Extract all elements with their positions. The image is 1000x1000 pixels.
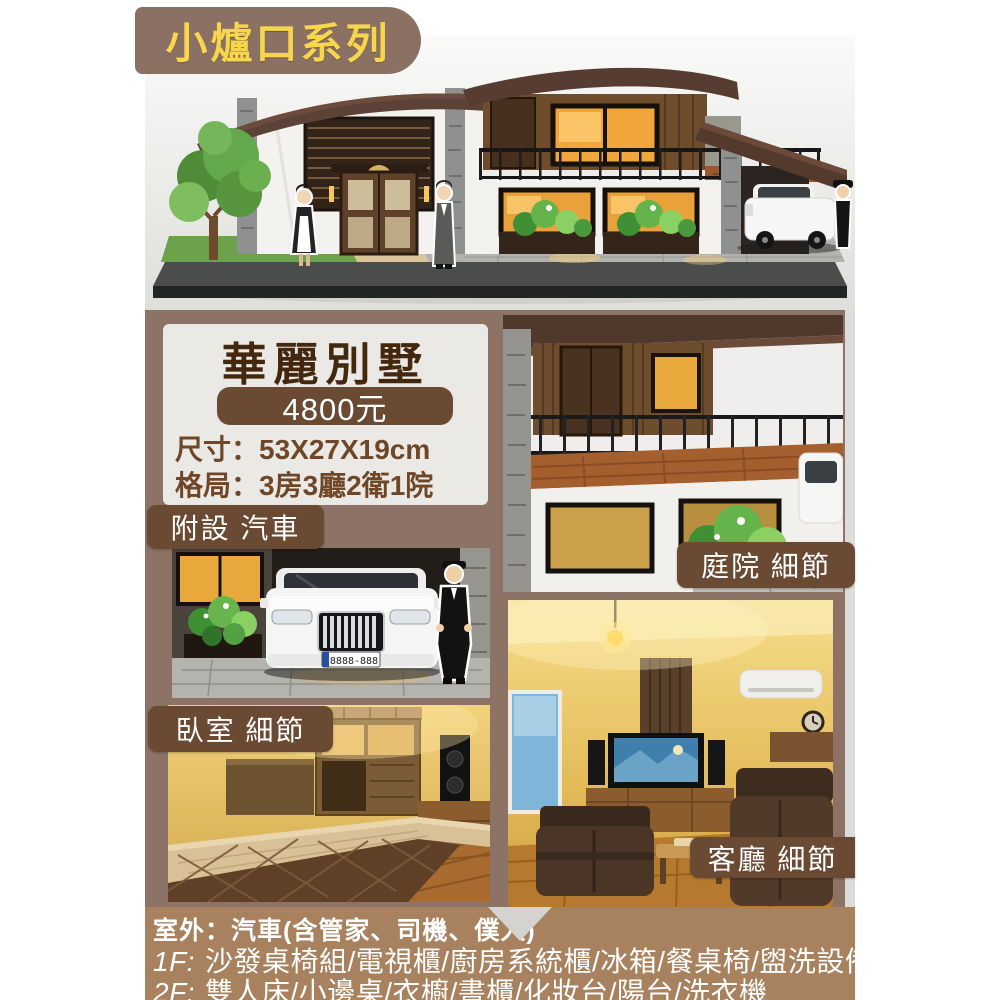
series-badge-label: 小爐口系列 [165, 10, 390, 71]
white-van [799, 453, 843, 523]
floor2-items: 雙人床/小邊桌/衣櫥/書櫃/化妝台/陽台/洗衣機 [205, 977, 768, 1000]
garage-illustration: 8888-888 [172, 548, 490, 698]
product-poster: 小爐口系列 [0, 0, 1000, 1000]
first-floor-wall [483, 180, 739, 254]
price-label: 4800元 [283, 384, 388, 429]
price-pill: 4800元 [217, 387, 453, 425]
wall-shelf [770, 732, 833, 762]
right-background-strip [845, 310, 855, 907]
svg-text:8888-888: 8888-888 [330, 656, 378, 667]
garage-car-photo: 8888-888 [172, 548, 490, 698]
tag-living-room-detail: 客廳 細節 [690, 837, 855, 878]
series-badge: 小爐口系列 [135, 7, 421, 74]
spec-size: 尺寸：53X27X19cm [175, 428, 485, 468]
window [510, 692, 560, 812]
display-platform [153, 262, 847, 298]
white-suv-front: 8888-888 [260, 568, 442, 681]
villa-exterior-illustration [145, 36, 855, 310]
desk [226, 759, 314, 815]
spec-layout: 格局：3房3廳2衛1院 [175, 464, 485, 504]
butler-figure [433, 180, 455, 269]
air-conditioner [740, 670, 822, 698]
tag-included-car: 附設 汽車 [147, 505, 324, 549]
chauffeur-figure [833, 180, 853, 248]
entrance-double-door [341, 172, 417, 254]
tag-courtyard-detail: 庭院 細節 [677, 542, 855, 588]
floor2-prefix: 2F: [153, 977, 195, 1000]
main-villa-photo [145, 36, 855, 310]
left-sofa [536, 806, 654, 896]
footer-floor2-line: 2F:雙人床/小邊桌/衣櫥/書櫃/化妝台/陽台/洗衣機 [153, 971, 768, 1000]
footer-description-bar: 室外：汽車(含管家、司機、僕人) 1F:沙發桌椅組/電視櫃/廚房系統櫃/冰箱/餐… [145, 907, 855, 1000]
wood-art-panel [640, 658, 692, 742]
title-panel: 華麗別墅 4800元 尺寸：53X27X19cm 格局：3房3廳2衛1院 [163, 324, 488, 505]
tag-bedroom-detail: 臥室 細節 [148, 706, 333, 752]
license-plate: 8888-888 [322, 652, 380, 667]
window [548, 505, 652, 571]
